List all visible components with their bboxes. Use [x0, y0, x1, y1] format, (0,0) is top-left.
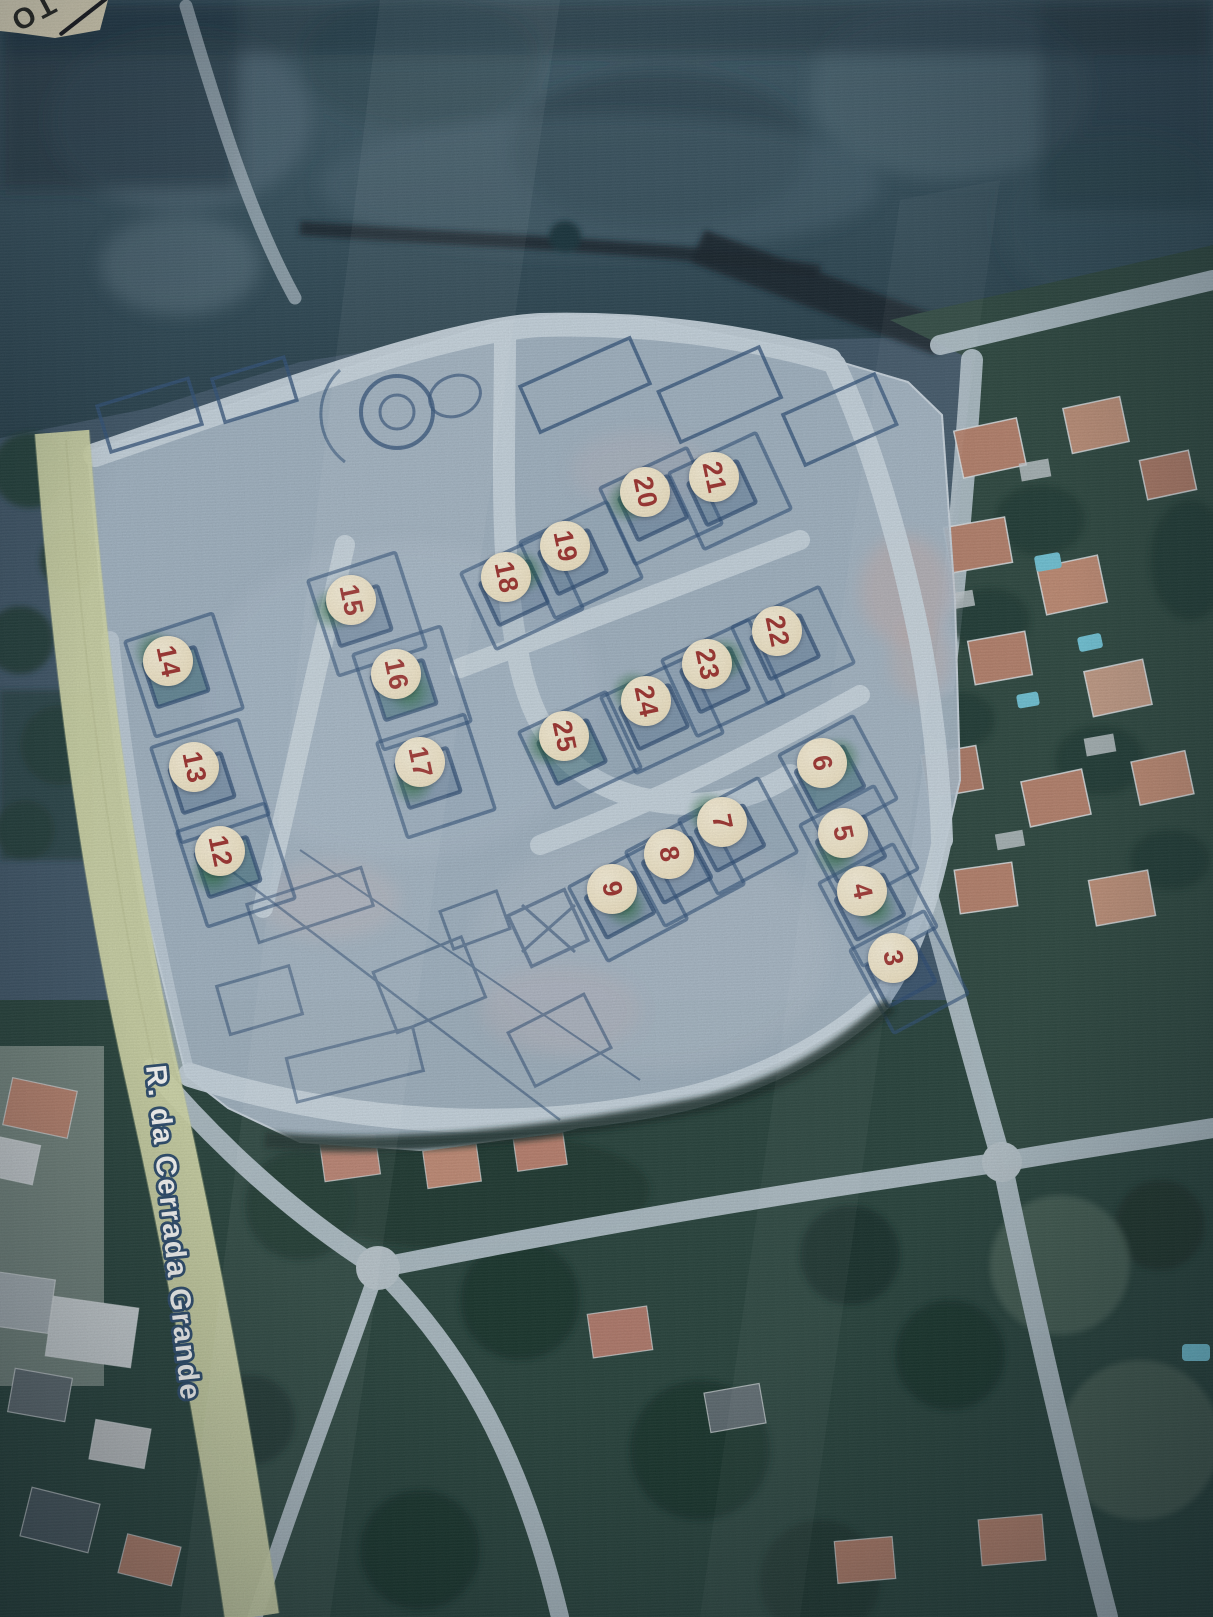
lot-marker-number: 6	[805, 752, 839, 774]
lot-marker-12: 12	[195, 826, 245, 876]
lot-marker-6: 6	[797, 738, 847, 788]
lot-marker-21: 21	[689, 452, 739, 502]
lot-marker-number: 23	[688, 645, 725, 683]
lot-marker-number: 7	[705, 811, 739, 833]
lot-marker-18: 18	[481, 552, 531, 602]
lot-marker-20: 20	[620, 467, 670, 517]
lot-marker-15: 15	[326, 575, 376, 625]
lot-marker-number: 5	[826, 822, 860, 844]
lot-marker-number: 22	[758, 612, 795, 650]
lot-marker-17: 17	[395, 737, 445, 787]
lot-marker-number: 15	[332, 581, 369, 619]
lot-marker-22: 22	[752, 606, 802, 656]
aerial-basemap: R. da Cerrada Grande	[0, 0, 1213, 1617]
lot-marker-number: 20	[626, 473, 663, 511]
lot-marker-5: 5	[818, 808, 868, 858]
lot-marker-number: 8	[652, 843, 686, 865]
lot-marker-3: 3	[868, 933, 918, 983]
lot-marker-19: 19	[540, 521, 590, 571]
lot-marker-number: 16	[377, 655, 414, 693]
lot-marker-number: 14	[149, 642, 186, 680]
lot-marker-number: 18	[487, 558, 524, 596]
lot-marker-number: 3	[876, 947, 910, 969]
lot-marker-24: 24	[621, 676, 671, 726]
lot-marker-number: 25	[545, 717, 582, 755]
lot-marker-9: 9	[587, 864, 637, 914]
lot-marker-8: 8	[644, 829, 694, 879]
lot-marker-number: 4	[845, 880, 879, 902]
lot-marker-number: 24	[627, 682, 664, 720]
lot-marker-number: 17	[401, 743, 438, 781]
lot-marker-4: 4	[837, 866, 887, 916]
lot-marker-23: 23	[682, 639, 732, 689]
lot-marker-14: 14	[143, 636, 193, 686]
lot-marker-7: 7	[697, 797, 747, 847]
lot-marker-number: 12	[201, 832, 238, 870]
lot-marker-number: 9	[595, 878, 629, 900]
lot-marker-25: 25	[539, 711, 589, 761]
lot-marker-number: 19	[546, 527, 583, 565]
map-photo: R. da Cerrada Grande TO 3456789121314151…	[0, 0, 1213, 1617]
lot-marker-16: 16	[371, 649, 421, 699]
lot-marker-number: 13	[175, 748, 212, 786]
lot-marker-number: 21	[695, 458, 732, 496]
lot-marker-13: 13	[169, 742, 219, 792]
